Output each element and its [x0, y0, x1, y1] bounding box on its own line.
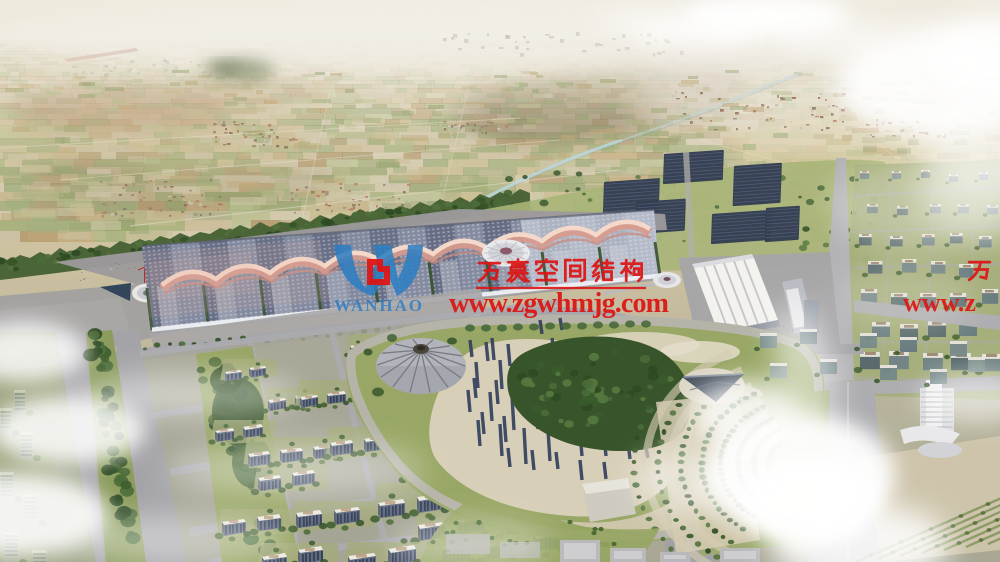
svg-text:www.zgwhmjg.com: www.zgwhmjg.com [449, 288, 669, 319]
svg-text:www.z: www.z [903, 288, 976, 317]
